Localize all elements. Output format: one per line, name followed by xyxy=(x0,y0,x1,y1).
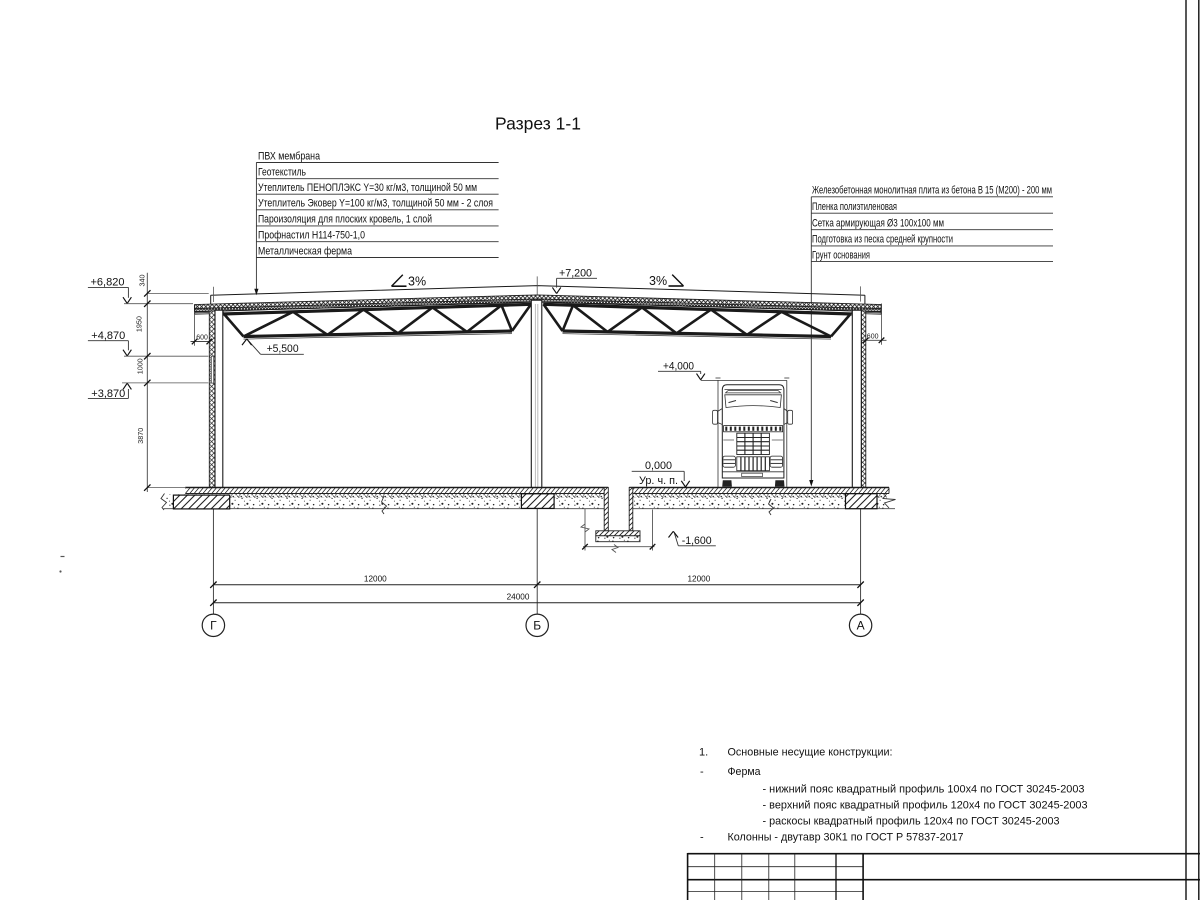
svg-text:+4,000: +4,000 xyxy=(663,360,694,372)
svg-text:Подготовка из песка средней кр: Подготовка из песка средней крупности xyxy=(812,234,953,246)
svg-text:Разрез 1-1: Разрез 1-1 xyxy=(495,114,581,134)
svg-text:Геотекстиль: Геотекстиль xyxy=(258,167,306,179)
svg-text:3%: 3% xyxy=(649,274,667,288)
svg-text:Ур. ч. п.: Ур. ч. п. xyxy=(639,475,678,487)
svg-text:Грунт основания: Грунт основания xyxy=(812,249,870,261)
svg-text:0,000: 0,000 xyxy=(645,460,672,472)
svg-text:Утеплитель Эковер Y=100 кг/м3,: Утеплитель Эковер Y=100 кг/м3, толщиной … xyxy=(258,198,493,210)
svg-text:Металлическая ферма: Металлическая ферма xyxy=(258,245,352,257)
svg-text:1.: 1. xyxy=(699,747,708,759)
svg-text:600: 600 xyxy=(196,335,208,342)
svg-text:-1,600: -1,600 xyxy=(682,535,712,547)
svg-text:Утеплитель ПЕНОПЛЭКС Y=30 кг/м: Утеплитель ПЕНОПЛЭКС Y=30 кг/м3, толщино… xyxy=(258,182,477,194)
svg-text:- верхний пояс квадратный проф: - верхний пояс квадратный профиль 120х4 … xyxy=(763,800,1088,812)
svg-text:+5,500: +5,500 xyxy=(267,343,299,355)
svg-text:- нижний пояс квадратный профи: - нижний пояс квадратный профиль 100х4 п… xyxy=(763,784,1085,796)
svg-text:Железобетонная монолитная плит: Железобетонная монолитная плита из бетон… xyxy=(812,185,1052,197)
svg-text:+6,820: +6,820 xyxy=(91,277,125,289)
svg-text:Г: Г xyxy=(210,619,217,633)
svg-text:-: - xyxy=(700,766,704,778)
svg-text:-: - xyxy=(700,832,704,844)
svg-text:Ферма: Ферма xyxy=(728,766,762,778)
svg-text:Сетка армирующая Ø3 100х100 мм: Сетка армирующая Ø3 100х100 мм xyxy=(812,218,944,230)
svg-text:Пароизоляция для плоских крове: Пароизоляция для плоских кровель, 1 слой xyxy=(258,214,432,226)
svg-text:12000: 12000 xyxy=(688,574,711,583)
svg-text:Колонны - двутавр 30К1 по ГОСТ: Колонны - двутавр 30К1 по ГОСТ Р 57837-2… xyxy=(728,832,964,844)
svg-text:340: 340 xyxy=(137,275,146,287)
svg-text:1950: 1950 xyxy=(135,316,144,332)
svg-text:Профнастил Н114-750-1,0: Профнастил Н114-750-1,0 xyxy=(258,230,365,242)
svg-text:А: А xyxy=(857,619,865,633)
svg-text:Б: Б xyxy=(533,619,541,633)
svg-text:24000: 24000 xyxy=(507,593,530,602)
svg-text:Основные несущие конструкции:: Основные несущие конструкции: xyxy=(728,747,893,759)
svg-text:+4,870: +4,870 xyxy=(91,330,125,342)
svg-text:Пленка полиэтиленовая: Пленка полиэтиленовая xyxy=(812,201,897,213)
svg-text:3870: 3870 xyxy=(136,428,145,444)
svg-text:ПВХ мембрана: ПВХ мембрана xyxy=(258,150,320,162)
svg-text:+7,200: +7,200 xyxy=(559,267,592,279)
svg-text:600: 600 xyxy=(867,333,879,340)
svg-text:1000: 1000 xyxy=(136,358,145,374)
svg-text:12000: 12000 xyxy=(364,574,387,583)
svg-text:3%: 3% xyxy=(408,274,426,288)
svg-text:- раскосы квадратный профиль 1: - раскосы квадратный профиль 120х4 по ГО… xyxy=(763,816,1060,828)
